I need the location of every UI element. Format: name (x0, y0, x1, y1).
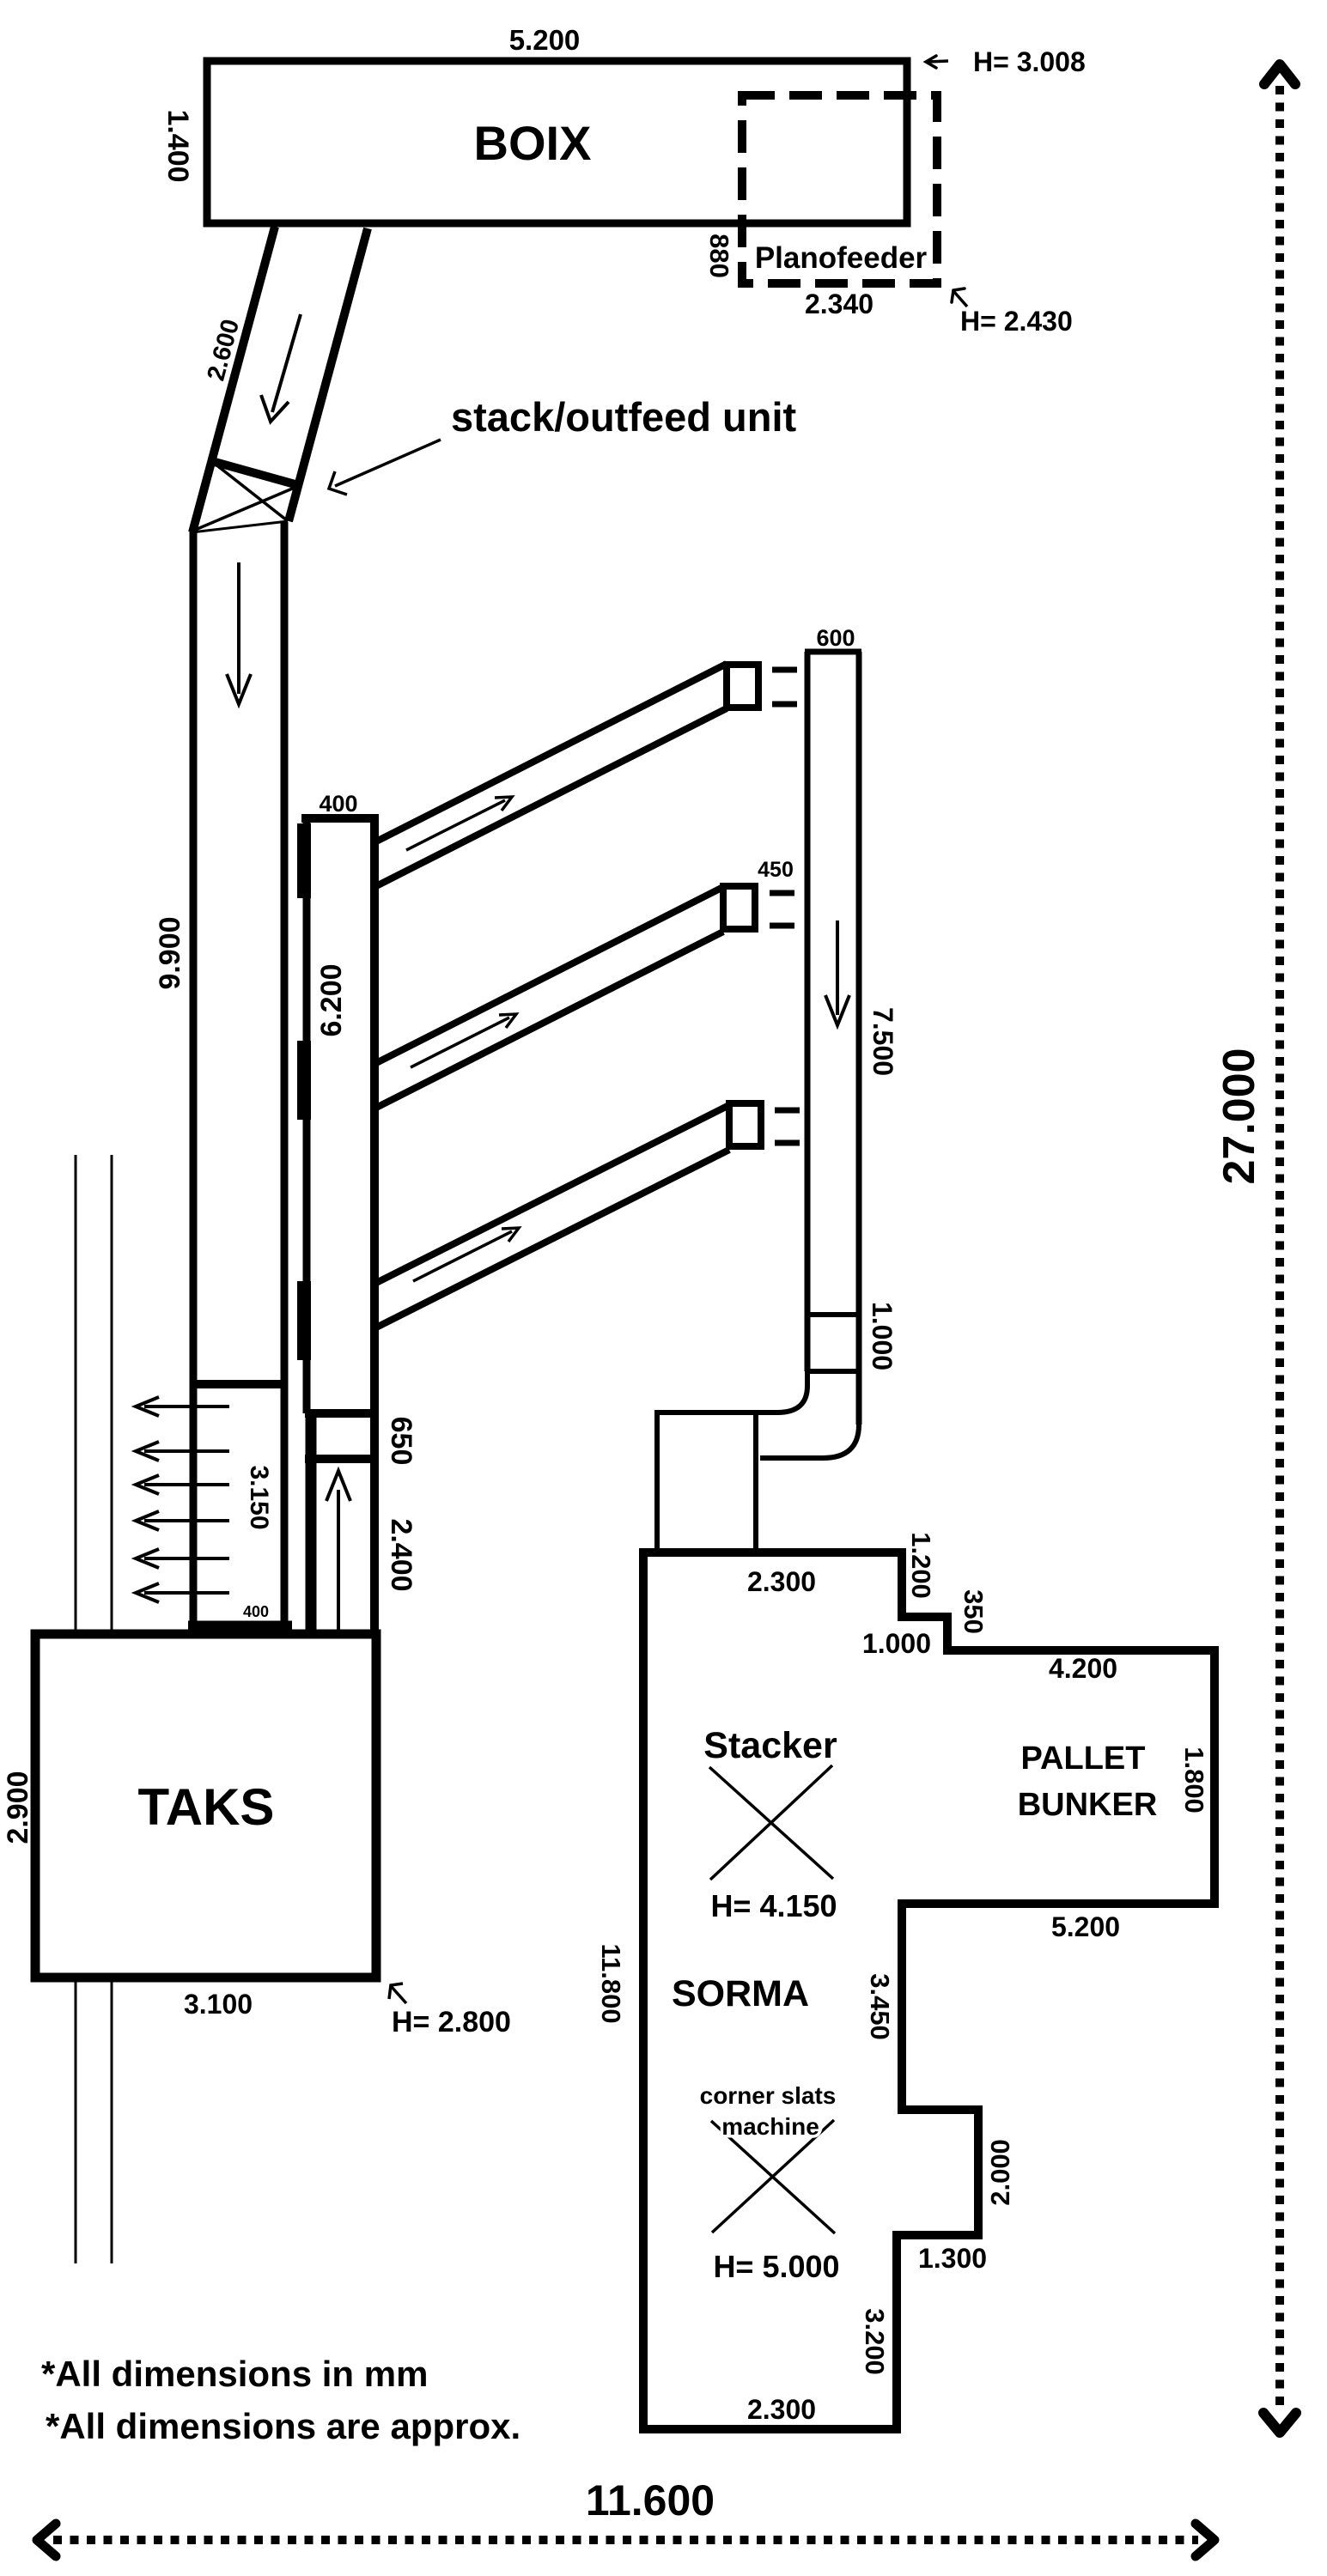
svg-text:600: 600 (816, 625, 855, 651)
svg-text:7.500: 7.500 (867, 1007, 898, 1076)
svg-text:2.000: 2.000 (985, 2139, 1015, 2206)
svg-text:3.450: 3.450 (865, 1973, 895, 2040)
svg-text:Planofeeder: Planofeeder (755, 241, 928, 275)
svg-text:H= 2.430: H= 2.430 (960, 306, 1073, 337)
svg-text:350: 350 (959, 1589, 989, 1634)
svg-text:4.200: 4.200 (1049, 1653, 1117, 1684)
svg-text:6.200: 6.200 (315, 963, 348, 1036)
svg-text:3.100: 3.100 (184, 1989, 253, 2020)
svg-text:3.200: 3.200 (860, 2308, 890, 2375)
svg-text:2.340: 2.340 (805, 289, 874, 319)
svg-text:11.600: 11.600 (586, 2476, 715, 2524)
svg-text:H= 5.000: H= 5.000 (713, 2249, 839, 2284)
svg-text:SORMA: SORMA (672, 1973, 809, 2014)
svg-text:5.200: 5.200 (509, 24, 581, 56)
svg-text:*All dimensions are approx.: *All dimensions are approx. (46, 2406, 520, 2446)
svg-text:1.000: 1.000 (867, 1302, 898, 1370)
svg-text:machine: machine (721, 2113, 819, 2140)
svg-text:1.200: 1.200 (906, 1532, 936, 1599)
svg-text:400: 400 (243, 1603, 269, 1620)
svg-text:2.300: 2.300 (747, 2394, 816, 2425)
svg-text:1.800: 1.800 (1179, 1747, 1209, 1814)
svg-text:H= 4.150: H= 4.150 (710, 1888, 837, 1923)
svg-text:2.900: 2.900 (2, 1771, 34, 1844)
svg-text:9.900: 9.900 (154, 916, 186, 989)
svg-text:PALLET: PALLET (1021, 1741, 1146, 1777)
svg-text:650: 650 (385, 1417, 417, 1466)
svg-text:450: 450 (758, 858, 794, 882)
svg-text:H= 2.800: H= 2.800 (392, 2006, 511, 2038)
svg-text:400: 400 (319, 791, 357, 817)
svg-text:880: 880 (704, 234, 734, 278)
svg-text:2.300: 2.300 (747, 1566, 816, 1597)
svg-text:1.300: 1.300 (918, 2243, 987, 2274)
svg-text:Stacker: Stacker (703, 1725, 837, 1766)
svg-text:1.000: 1.000 (862, 1628, 931, 1659)
svg-text:*All dimensions in mm: *All dimensions in mm (41, 2354, 428, 2394)
svg-text:3.150: 3.150 (245, 1465, 273, 1529)
svg-text:stack/outfeed unit: stack/outfeed unit (451, 394, 797, 440)
svg-text:BOIX: BOIX (474, 116, 592, 170)
svg-text:TAKS: TAKS (138, 1778, 275, 1836)
svg-text:BUNKER: BUNKER (1018, 1787, 1158, 1823)
svg-text:27.000: 27.000 (1214, 1048, 1264, 1184)
svg-text:5.200: 5.200 (1051, 1911, 1120, 1942)
svg-text:H= 3.008: H= 3.008 (973, 46, 1086, 77)
svg-text:corner slats: corner slats (700, 2082, 837, 2109)
svg-text:1.400: 1.400 (161, 109, 194, 182)
svg-text:2.400: 2.400 (385, 1518, 417, 1591)
svg-text:11.800: 11.800 (596, 1943, 626, 2023)
